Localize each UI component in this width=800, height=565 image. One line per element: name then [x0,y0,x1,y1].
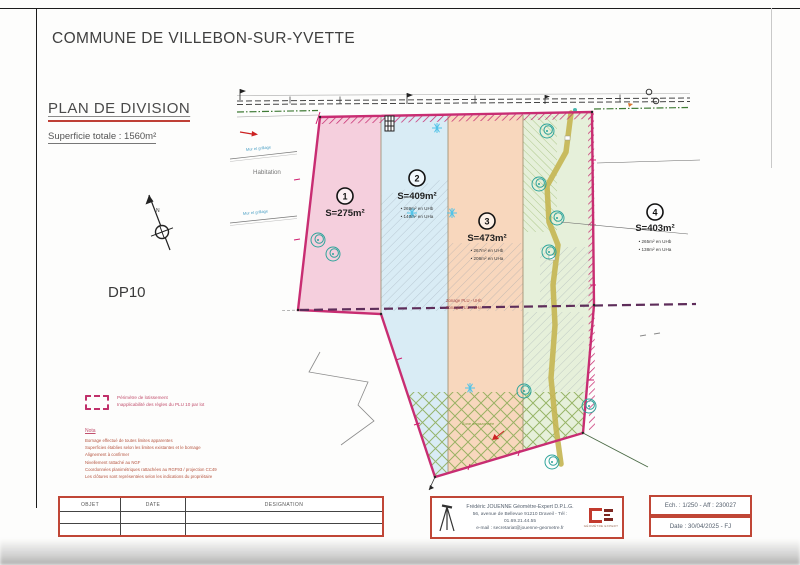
parcel-2-detail-2: • 140m² en UHa [401,214,434,219]
parcel-4-detail-2: • 138m² en UHa [639,247,672,252]
note-line: Les clôtures sont représentées selon les… [85,473,217,480]
note-line: Superficies établies selon les limites e… [85,444,217,451]
note-line: Bornage effectué de toutes limites appar… [85,437,217,444]
page-frame-right [771,8,772,168]
parcel-4-area-label: S=403m² [635,223,674,234]
note-line: Coordonnées planimétriques rattachées au… [85,466,217,473]
green-zone-label: Zone engazonnée [462,421,495,426]
legend: Périmètre de lotissement Inapplicabilité… [85,394,204,410]
parcel-4-number: 4 [652,208,657,218]
surveyor-name: Frédéric JOUENNE Géomètre-Expert D.P.L.G… [457,504,583,511]
parcel-1-number: 1 [342,192,347,202]
division-plan-drawing: 1 S=275m² 2 S=409m² • 269m² en UHb • 140… [228,82,710,494]
sheet-reference: DP10 [108,284,146,301]
scale-box: Ech. : 1/250 - Aff : 230027 [649,495,752,516]
parcel-2-number: 2 [414,174,419,184]
commune-title: COMMUNE DE VILLEBON-SUR-YVETTE [52,30,355,48]
table-row [60,524,382,535]
surveyor-address: 56, avenue de Bellevue 91210 Draveil - T… [457,511,583,525]
legend-line-1: Périmètre de lotissement [117,394,204,401]
parcel-3-area-label: S=473m² [467,233,506,244]
total-area-label: Superficie totale : 1560m² [48,131,156,144]
surveyor-email: e-mail : secretariat@jouenne-geometre.fr [457,525,583,532]
legend-line-2: Inapplicabilité des règles du PLU 10 par… [117,401,204,408]
col-objet: OBJET [60,498,121,511]
wall-label-bottom: Mur et grillage [243,208,269,216]
scan-shadow [0,539,800,565]
ge-logo-icon [589,508,613,523]
perimeter-swatch-icon [85,395,109,410]
plan-title-text: PLAN DE DIVISION [48,100,190,117]
col-date: DATE [121,498,186,511]
north-arrow-icon: N [132,188,192,258]
notes-block: Nota Bornage effectué de toutes limites … [85,428,217,480]
parcel-4-detail-1: • 265m² en UHb [639,239,672,244]
geometre-expert-logo: GÉOMÈTRE EXPERT [583,508,619,528]
zoning-label-upper: Zonage PLU - UHb [446,298,482,303]
parcel-4-label: 4 S=403m² • 265m² en UHb • 138m² en UHa [635,204,674,252]
parcel-2-area-label: S=409m² [397,191,436,202]
path-structure-1 [565,136,570,140]
neighbour-building-outline [309,352,374,445]
utility-symbol [385,116,394,131]
tripod-icon [437,503,457,533]
page-frame-top [0,8,800,9]
plan-title: PLAN DE DIVISION [48,100,190,122]
parcel-3-detail-1: • 267m² en UHb [471,248,504,253]
parcel-3-detail-2: • 206m² en UHa [471,256,504,261]
table-row [60,512,382,524]
col-designation: DESIGNATION [186,498,382,511]
date-box: Date : 30/04/2025 - FJ [649,516,752,537]
revision-table-header: OBJET DATE DESIGNATION [60,498,382,512]
plan-sheet: COMMUNE DE VILLEBON-SUR-YVETTE PLAN DE D… [0,0,800,565]
note-line: Nivellement rattaché au NGF [85,459,217,466]
habitation-label: Habitation [253,169,281,176]
logo-caption: GÉOMÈTRE EXPERT [584,524,618,528]
revision-table: OBJET DATE DESIGNATION [58,496,384,537]
parcel-2-detail-1: • 269m² en UHb [401,206,434,211]
wall-label-top: Mur et grillage [246,144,272,152]
note-line: Alignement à confirmer [85,451,217,458]
zoning-label-lower: Zonage PLU - UHa [446,305,482,310]
surveyor-box: Frédéric JOUENNE Géomètre-Expert D.P.L.G… [430,496,624,539]
parcel-1-area-label: S=275m² [325,208,364,219]
neighbour-boundaries [230,152,297,226]
page-frame-left [36,8,37,508]
notes-title: Nota [85,428,217,434]
north-label: N [156,208,160,214]
parcel-3-number: 3 [484,217,489,227]
